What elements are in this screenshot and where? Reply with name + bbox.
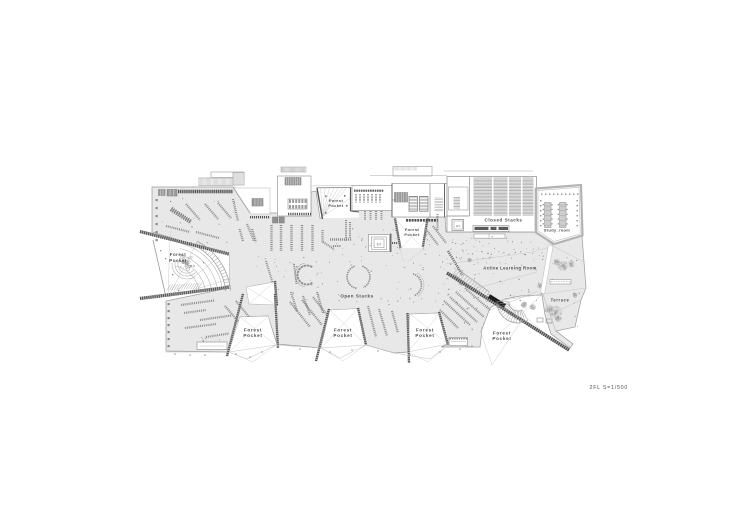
svg-text:Pocket: Pocket bbox=[333, 333, 352, 338]
svg-text:Pocket: Pocket bbox=[328, 203, 343, 208]
svg-text:EV: EV bbox=[377, 242, 382, 246]
svg-text:Forest: Forest bbox=[244, 328, 262, 333]
svg-text:Pocket: Pocket bbox=[243, 333, 262, 338]
svg-text:Forest: Forest bbox=[334, 328, 352, 333]
svg-text:Pocket: Pocket bbox=[404, 232, 419, 237]
svg-text:Study_room: Study_room bbox=[544, 228, 570, 233]
svg-text:Forest: Forest bbox=[493, 331, 511, 336]
svg-text:Pocket: Pocket bbox=[415, 333, 434, 338]
svg-text:Pocket: Pocket bbox=[169, 258, 186, 263]
svg-text:2FL S=1/500: 2FL S=1/500 bbox=[590, 385, 629, 391]
svg-text:EV: EV bbox=[456, 224, 460, 228]
svg-text:Forest: Forest bbox=[170, 252, 186, 257]
svg-text:Terrace: Terrace bbox=[551, 298, 570, 303]
svg-text:Closed Stacks: Closed Stacks bbox=[485, 218, 523, 223]
svg-text:Open Stacks: Open Stacks bbox=[340, 294, 373, 299]
svg-text:Forest: Forest bbox=[416, 328, 434, 333]
svg-text:Active Learning Room: Active Learning Room bbox=[483, 266, 536, 271]
